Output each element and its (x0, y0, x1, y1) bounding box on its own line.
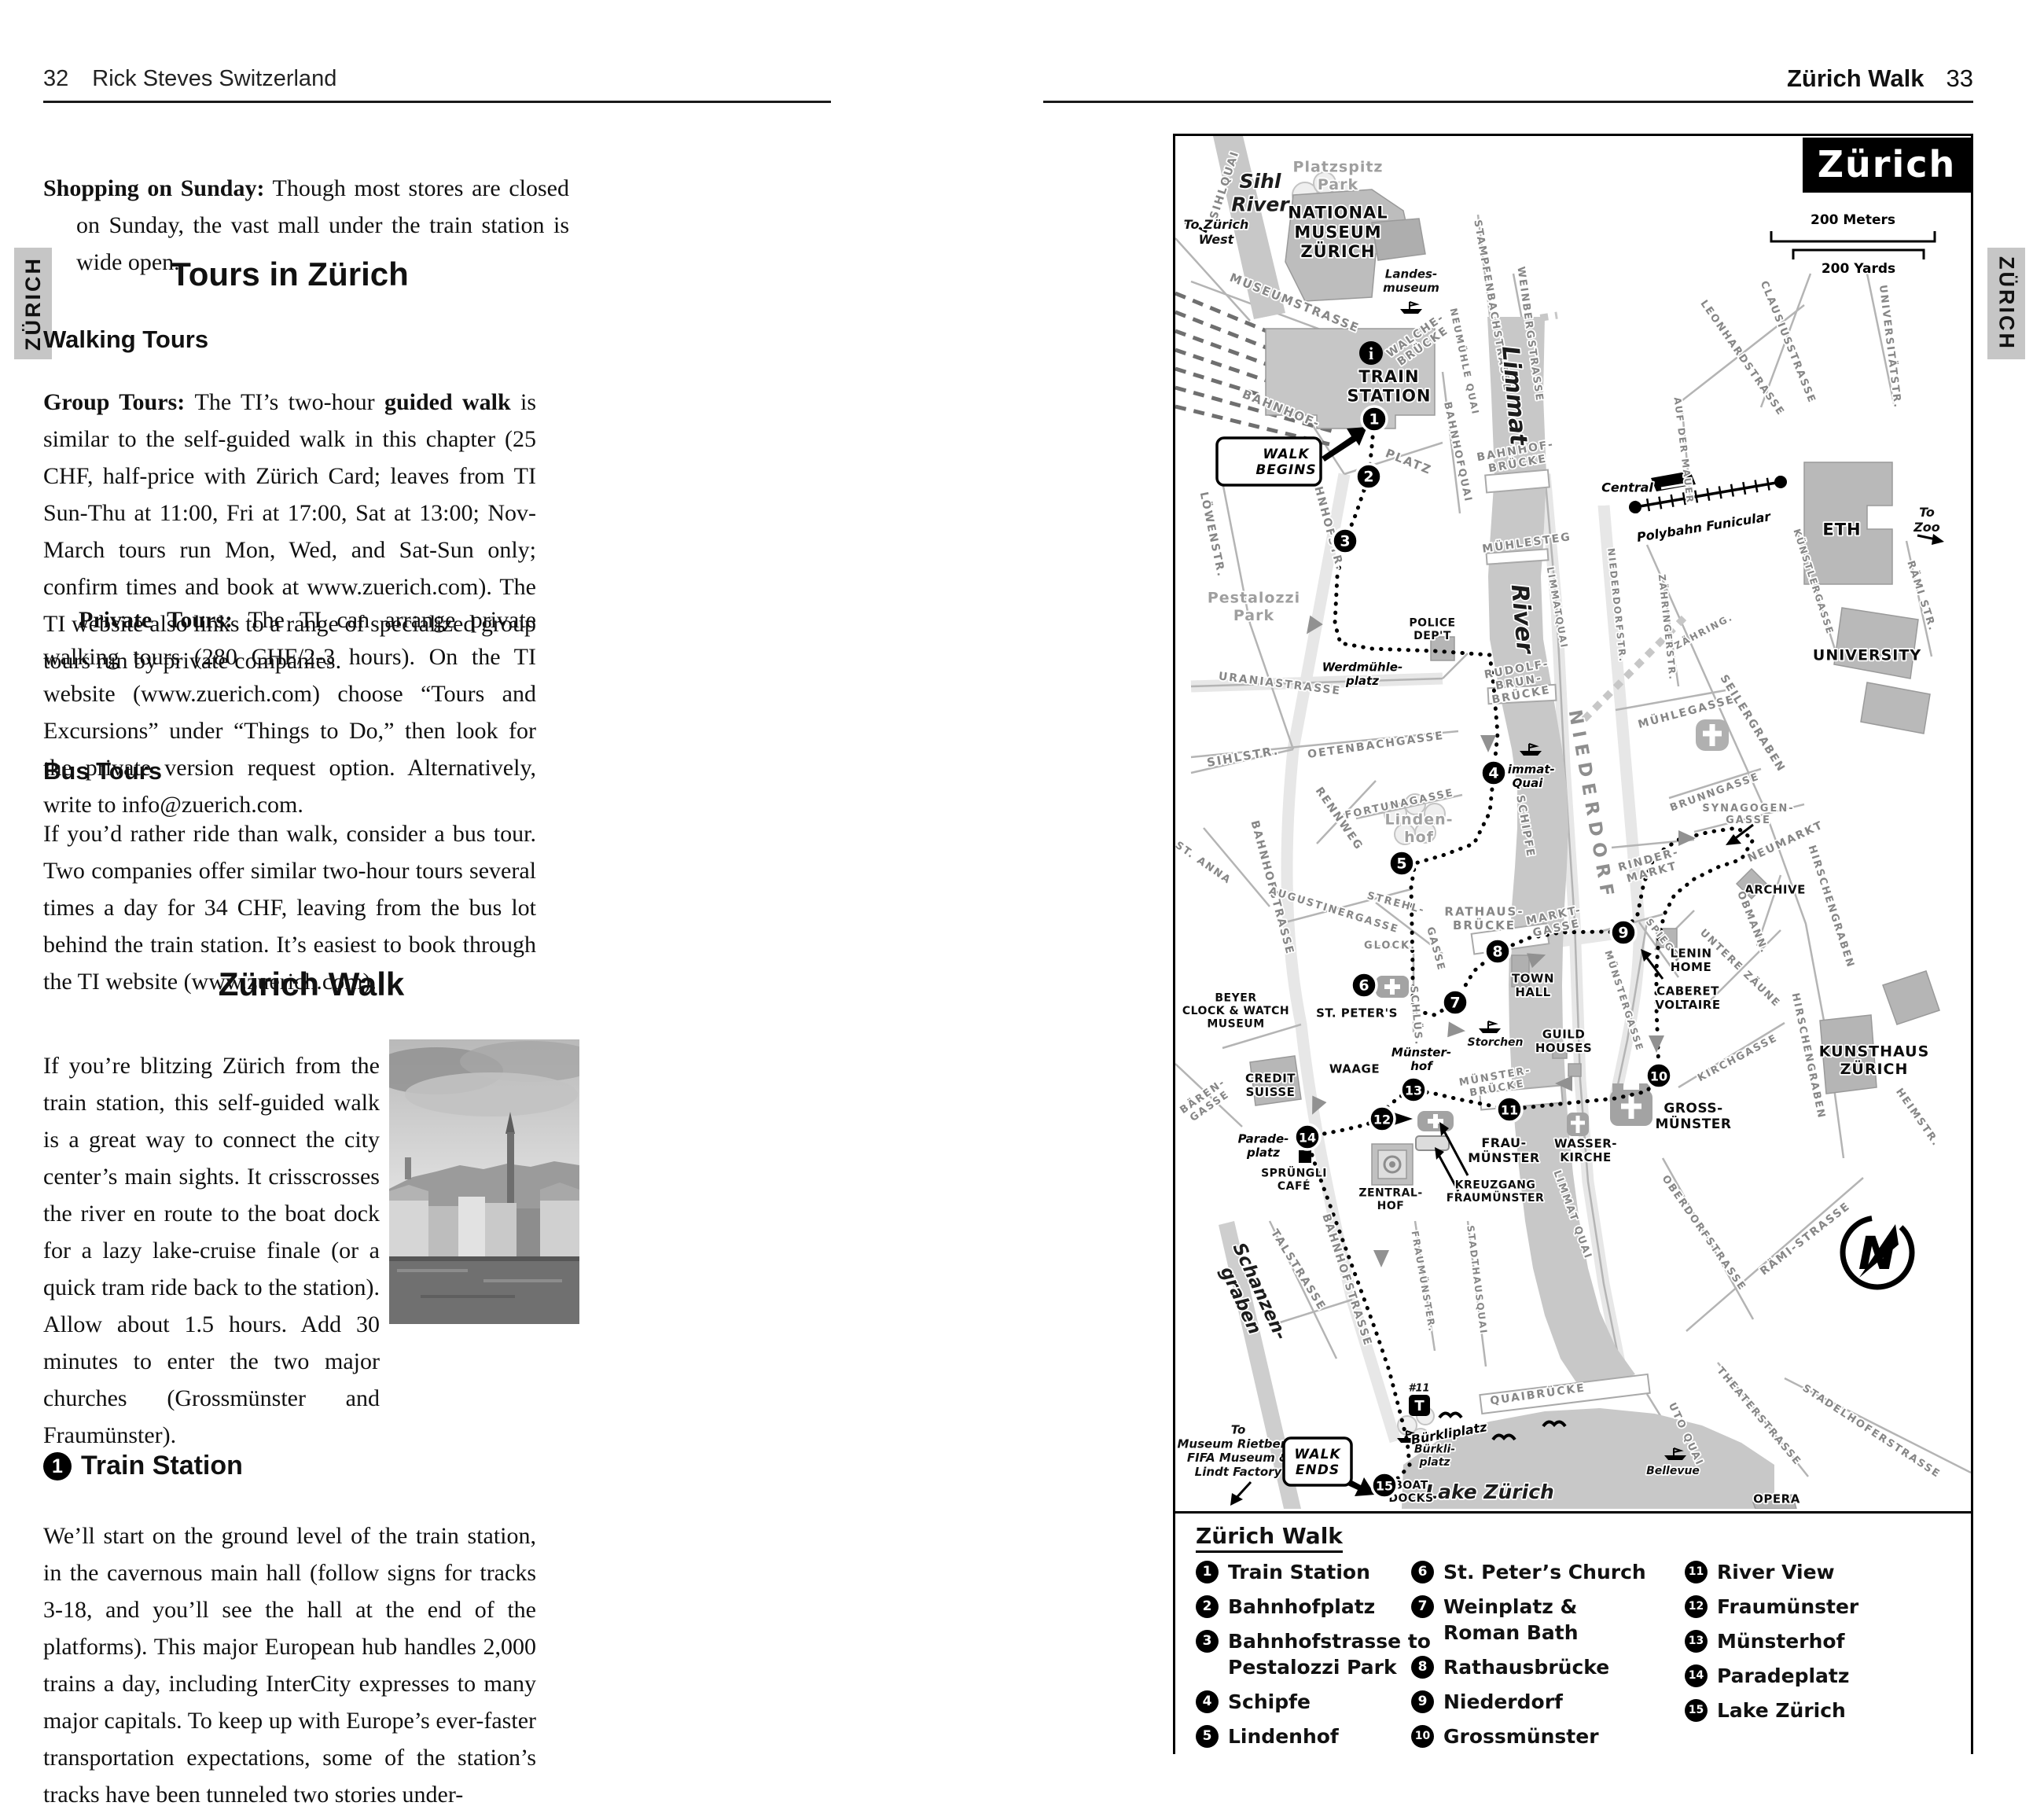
map-label-schanzen-graben: Schanzen-graben (1209, 1240, 1292, 1352)
svg-text:14: 14 (1299, 1131, 1316, 1146)
svg-text:T: T (1414, 1398, 1425, 1414)
map-label-bellevue: Bellevue (1646, 1465, 1700, 1477)
map-label-national-museum-zürich: NATIONALMUSEUMZÜRICH (1288, 204, 1388, 262)
map-label-synagogen-gasse: SYNAGOGEN-GASSE (1702, 803, 1794, 826)
map-marker-7: 7 (1443, 990, 1468, 1015)
right-zurich-tab: ZÜRICH (1987, 248, 2025, 359)
svg-text:UNIVERSITY: UNIVERSITY (1813, 647, 1921, 664)
map-label-zähringerstr: ZÄHRINGERSTR. (1656, 574, 1679, 682)
map-marker-10: 10 (1646, 1063, 1671, 1088)
scale-meters: 200 Meters (1811, 212, 1895, 228)
map-marker-1: 1 (1362, 406, 1387, 432)
map-title: Zürich (1818, 143, 1957, 186)
map-label-bürkli-platz: Bürkli-platz (1414, 1444, 1455, 1469)
zurich-map-panel: i T N 200 Meters 200 Yards Zürich SIHLQU… (1173, 134, 1973, 1754)
svg-text:URANIASTRASSE: URANIASTRASSE (1218, 670, 1342, 697)
svg-text:Bellevue: Bellevue (1646, 1465, 1700, 1477)
legend-label: Lindenhof (1228, 1723, 1339, 1749)
map-label-gasse: GASSE (1424, 925, 1447, 973)
map-marker-3: 3 (1333, 528, 1358, 554)
legend-badge-9: 9 (1411, 1690, 1434, 1713)
svg-text:TRAINSTATION: TRAINSTATION (1347, 367, 1431, 406)
map-label-glock: GLOCK. (1364, 940, 1416, 952)
svg-text:SihlRiver: SihlRiver (1231, 170, 1290, 216)
map-marker-2: 2 (1356, 464, 1381, 489)
svg-text:6: 6 (1358, 977, 1369, 995)
map-marker-5: 5 (1389, 851, 1414, 876)
svg-text:5: 5 (1396, 855, 1406, 873)
legend-badge-11: 11 (1685, 1561, 1708, 1583)
legend-label: Niederdorf (1443, 1689, 1563, 1715)
legend-label: St. Peter’s Church (1443, 1559, 1646, 1585)
legend-label: Lake Zürich (1717, 1697, 1846, 1723)
map-label-lenin-home: LENINHOME (1671, 946, 1712, 974)
map-label-eth: ETH (1822, 520, 1861, 539)
map-label-kreuzgang-fraumünster: KREUZGANGFRAUMÜNSTER (1447, 1179, 1545, 1205)
svg-text:Linden-hof: Linden-hof (1384, 811, 1453, 845)
map-label-st-peter-s: ST. PETER'S (1316, 1006, 1398, 1020)
svg-text:WALKENDS: WALKENDS (1294, 1447, 1341, 1478)
map-label-seilergraben: SEILERGRABEN (1718, 673, 1788, 775)
svg-text:ST. PETER'S: ST. PETER'S (1316, 1006, 1398, 1020)
map-label-fraumünster: FRAUMÜNSTER. (1410, 1230, 1439, 1333)
svg-text:GROSS-MÜNSTER: GROSS-MÜNSTER (1656, 1101, 1732, 1132)
train-station-paragraph: We’ll start on the ground level of the t… (43, 1517, 536, 1813)
svg-text:OBERDORFSTRASSE: OBERDORFSTRASSE (1660, 1173, 1748, 1293)
svg-text:ToZoo: ToZoo (1913, 505, 1940, 535)
svg-text:2: 2 (1363, 469, 1373, 486)
svg-text:i: i (1369, 344, 1373, 363)
st-peters-church-icon (1376, 976, 1409, 998)
svg-text:7: 7 (1450, 995, 1460, 1012)
svg-text:SYNAGOGEN-GASSE: SYNAGOGEN-GASSE (1702, 803, 1794, 826)
map-label-guild-houses: GUILDHOUSES (1535, 1027, 1592, 1055)
svg-text:GUILDHOUSES: GUILDHOUSES (1535, 1027, 1592, 1055)
legend-badge-4: 4 (1196, 1690, 1219, 1713)
svg-text:FRAUMÜNSTER.: FRAUMÜNSTER. (1410, 1230, 1439, 1333)
legend-badge-12: 12 (1685, 1595, 1708, 1618)
svg-text:PLATZ: PLATZ (1384, 446, 1434, 477)
grossmunster-icon (1610, 1083, 1652, 1126)
legend-item-niederdorf: 9Niederdorf (1411, 1689, 1646, 1715)
svg-text:#11: #11 (1408, 1383, 1429, 1395)
map-label-11: #11 (1408, 1383, 1429, 1395)
svg-text:Münster-hof: Münster-hof (1391, 1045, 1451, 1073)
map-label-archive: ARCHIVE (1744, 882, 1806, 896)
map-label-talstrasse: TALSTRASSE (1268, 1227, 1328, 1313)
left-page-header: 32Rick Steves Switzerland (43, 66, 829, 92)
map-label-heimstr: HEIMSTR. (1893, 1087, 1942, 1149)
svg-text:STADELHOFERSTRASSE: STADELHOFERSTRASSE (1800, 1382, 1943, 1480)
map-label-bären-gasse: BÄREN-GASSE (1178, 1076, 1235, 1126)
legend-item-fraumünster: 12Fraumünster (1685, 1594, 1858, 1620)
svg-text:BAHNHOFSTRASSE: BAHNHOFSTRASSE (1319, 1212, 1374, 1348)
svg-text:11: 11 (1501, 1103, 1518, 1118)
legend-badge-1: 1 (1196, 1561, 1219, 1583)
legend-label: Grossmünster (1443, 1723, 1599, 1749)
map-label-uraniastrasse: URANIASTRASSE (1218, 670, 1342, 697)
legend-label: Weinplatz & Roman Bath (1443, 1594, 1579, 1646)
svg-text:TOWNHALL: TOWNHALL (1512, 971, 1554, 999)
legend-badge-7: 7 (1411, 1595, 1434, 1618)
map-label-platz: PLATZ (1384, 446, 1434, 477)
map-label-lake-zürich: Lake Zürich (1425, 1480, 1554, 1503)
map-label-waage: WAAGE (1329, 1061, 1380, 1076)
svg-text:RATHAUS-BRÜCKE: RATHAUS-BRÜCKE (1444, 904, 1524, 932)
legend-item-rathausbrücke: 8Rathausbrücke (1411, 1654, 1646, 1680)
book-title: Rick Steves Switzerland (92, 66, 336, 91)
svg-text:OPERA: OPERA (1753, 1491, 1800, 1506)
right-page-title: Zürich Walk (1787, 64, 1925, 92)
svg-text:LENINHOME: LENINHOME (1671, 946, 1712, 974)
map-label-storchen: Storchen (1467, 1036, 1523, 1049)
legend-label: Münsterhof (1717, 1628, 1844, 1654)
map-label-linden-hof: Linden-hof (1384, 811, 1453, 845)
map-label-oetenbachgasse: OETENBACHGASSE (1307, 730, 1445, 761)
compass-north-icon: N (1843, 1218, 1912, 1287)
map-marker-11: 11 (1497, 1097, 1522, 1122)
shopping-lead: Shopping on Sunday: (43, 175, 264, 201)
map-marker-9: 9 (1611, 920, 1636, 945)
map-label-zentral-hof: ZENTRAL-HOF (1358, 1187, 1422, 1213)
zurich-walk-heading: Zürich Walk (43, 966, 579, 1003)
map-label-train-station: TRAINSTATION (1347, 367, 1431, 406)
fraumunster-icon (1416, 1111, 1454, 1150)
legend-badge-2: 2 (1196, 1595, 1219, 1618)
svg-text:AUF DER MAUER: AUF DER MAUER (1672, 396, 1697, 504)
map-label-limmatquai: LIMMATQUAI (1545, 566, 1570, 650)
map-label-polybahn-funicular: Polybahn Funicular (1636, 509, 1773, 545)
legend-title: Zürich Walk (1196, 1523, 1343, 1553)
map-label-landes-museum: Landes-museum (1383, 267, 1439, 295)
map-label-rathaus-brücke: RATHAUS-BRÜCKE (1444, 904, 1524, 932)
tours-heading: Tours in Zürich (43, 256, 536, 293)
map-label-rinder-markt: RINDER-MARKT (1617, 846, 1684, 887)
svg-text:1: 1 (1369, 411, 1379, 429)
legend-item-st-peter-s-church: 6St. Peter’s Church (1411, 1559, 1646, 1585)
svg-text:Parade-platz: Parade-platz (1238, 1131, 1289, 1160)
svg-text:SIHLSTR.: SIHLSTR. (1206, 743, 1281, 770)
wasserkirche-icon (1567, 1113, 1589, 1136)
svg-text:NEUMÜHLE QUAI: NEUMÜHLE QUAI (1448, 307, 1483, 416)
map-label-parade-platz: Parade-platz (1238, 1131, 1289, 1160)
map-label-gross-münster: GROSS-MÜNSTER (1656, 1101, 1732, 1132)
map-label-sprüngli-caf: SPRÜNGLICAFÉ (1261, 1166, 1327, 1194)
svg-text:STADTHAUSQUAI: STADTHAUSQUAI (1465, 1225, 1489, 1336)
zurich-walk-intro: If you’re blitzing Zürich from the train… (43, 1047, 380, 1454)
svg-text:WAAGE: WAAGE (1329, 1061, 1380, 1076)
legend-item-paradeplatz: 14Paradeplatz (1685, 1663, 1858, 1689)
legend-badge-6: 6 (1411, 1561, 1434, 1583)
legend-item-train-station: 1Train Station (1196, 1559, 1431, 1585)
svg-text:LÖWENSTR.: LÖWENSTR. (1197, 491, 1230, 579)
svg-text:ETH: ETH (1822, 520, 1861, 539)
svg-text:ZENTRAL-HOF: ZENTRAL-HOF (1358, 1187, 1422, 1213)
svg-text:WASSER-KIRCHE: WASSER-KIRCHE (1554, 1136, 1617, 1164)
map-label-beyer-clock-watch-museum: BEYERCLOCK & WATCHMUSEUM (1182, 991, 1289, 1030)
svg-text:Bürkli-platz: Bürkli-platz (1414, 1444, 1455, 1469)
right-page-number: 33 (1947, 64, 1973, 92)
map-label-sihl-river: SihlRiver (1231, 170, 1290, 216)
walk-photo (389, 1039, 579, 1324)
svg-text:13: 13 (1405, 1083, 1422, 1098)
zurich-map: i T N 200 Meters 200 Yards Zürich SIHLQU… (1175, 136, 1971, 1509)
map-label-universitätstr: UNIVERSITÄTSTR. (1877, 284, 1904, 409)
map-label-caberet-voltaire: CABERETVOLTAIRE (1655, 984, 1720, 1012)
scale-yards: 200 Yards (1822, 261, 1895, 277)
svg-text:CABERETVOLTAIRE: CABERETVOLTAIRE (1655, 984, 1720, 1012)
svg-text:KREUZGANGFRAUMÜNSTER: KREUZGANGFRAUMÜNSTER (1447, 1179, 1545, 1205)
svg-text:9: 9 (1618, 925, 1628, 942)
private-tours-paragraph: Private Tours: The TI can arrange privat… (43, 601, 536, 823)
map-label-schlüs: SCHLÜS. (1407, 985, 1425, 1046)
train-station-heading: 1 Train Station (43, 1451, 243, 1481)
map-label-oberdorfstrasse: OBERDORFSTRASSE (1660, 1173, 1748, 1293)
svg-text:SEILERGRABEN: SEILERGRABEN (1718, 673, 1788, 775)
svg-text:10: 10 (1650, 1069, 1667, 1084)
svg-text:RÄMI-STRASSE: RÄMI-STRASSE (1757, 1199, 1853, 1278)
map-label-pestalozzi-park: PestalozziPark (1208, 589, 1300, 623)
map-label-rämi-strasse: RÄMI-STRASSE (1757, 1199, 1853, 1278)
legend-badge-8: 8 (1411, 1656, 1434, 1679)
svg-text:Lake Zürich: Lake Zürich (1425, 1480, 1554, 1503)
right-page-header: Zürich Walk33 (1164, 64, 1973, 93)
right-header-rule (1043, 101, 1973, 103)
map-label-neumühle-quai: NEUMÜHLE QUAI (1448, 307, 1483, 416)
svg-text:Landes-museum: Landes-museum (1383, 267, 1439, 295)
legend-item-bahnhofplatz: 2Bahnhofplatz (1196, 1594, 1431, 1620)
legend-badge-10: 10 (1411, 1725, 1434, 1748)
legend-label: Rathausbrücke (1443, 1654, 1609, 1680)
svg-text:Schanzen-graben: Schanzen-graben (1209, 1240, 1292, 1352)
legend-item-schipfe: 4Schipfe (1196, 1689, 1431, 1715)
legend-badge-14: 14 (1685, 1664, 1708, 1687)
map-marker-4: 4 (1481, 760, 1506, 785)
svg-text:RINDER-MARKT: RINDER-MARKT (1617, 846, 1684, 887)
map-label-town-hall: TOWNHALL (1512, 971, 1554, 999)
left-page-number: 32 (43, 66, 68, 91)
svg-text:OETENBACHGASSE: OETENBACHGASSE (1307, 730, 1445, 761)
legend-label: Paradeplatz (1717, 1663, 1849, 1689)
svg-text:ZÄHRINGERSTR.: ZÄHRINGERSTR. (1656, 574, 1679, 682)
svg-text:GLOCK.: GLOCK. (1364, 940, 1416, 952)
legend-label: Fraumünster (1717, 1594, 1858, 1620)
svg-text:SCHLÜS.: SCHLÜS. (1407, 985, 1425, 1046)
svg-text:3: 3 (1340, 533, 1350, 550)
svg-text:POLICEDEP'T: POLICEDEP'T (1409, 617, 1455, 643)
svg-text:LIMMATQUAI: LIMMATQUAI (1545, 566, 1570, 650)
map-label-st-anna: ST. ANNA (1175, 840, 1233, 887)
svg-text:8: 8 (1492, 943, 1502, 961)
bus-tours-subheading: Bus Tours (43, 757, 162, 785)
walking-tours-subheading: Walking Tours (43, 326, 208, 354)
map-label-credit-suisse: CREDITSUISSE (1245, 1071, 1296, 1099)
map-label-löwenstr: LÖWENSTR. (1197, 491, 1230, 579)
svg-text:Storchen: Storchen (1467, 1036, 1523, 1049)
map-marker-13: 13 (1401, 1077, 1426, 1102)
map-label-auf-der-mauer: AUF DER MAUER (1672, 396, 1697, 504)
svg-text:PestalozziPark: PestalozziPark (1208, 589, 1300, 623)
svg-text:NATIONALMUSEUMZÜRICH: NATIONALMUSEUMZÜRICH (1288, 204, 1388, 262)
legend-badge-5: 5 (1196, 1725, 1219, 1748)
station-number-badge: 1 (43, 1452, 72, 1480)
svg-text:Polybahn Funicular: Polybahn Funicular (1636, 509, 1773, 545)
svg-text:ST. ANNA: ST. ANNA (1175, 840, 1233, 887)
svg-text:BÄREN-GASSE: BÄREN-GASSE (1178, 1076, 1235, 1126)
map-label-bahnhofstrasse: BAHNHOFSTRASSE (1319, 1212, 1374, 1348)
map-label-opera: OPERA (1753, 1491, 1800, 1506)
legend-item-weinplatz-roman-bath: 7Weinplatz & Roman Bath (1411, 1594, 1646, 1646)
legend-item-bahnhofstrasse-to-pestalozzi-park: 3Bahnhofstrasse to Pestalozzi Park (1196, 1628, 1431, 1680)
legend-item-münsterhof: 13Münsterhof (1685, 1628, 1858, 1654)
map-label-central: Central (1601, 480, 1653, 495)
legend-item-river-view: 11River View (1685, 1559, 1858, 1585)
svg-text:GASSE: GASSE (1424, 925, 1447, 973)
map-label-wasser-kirche: WASSER-KIRCHE (1554, 1136, 1617, 1164)
info-icon: i (1359, 341, 1383, 365)
map-label-university: UNIVERSITY (1813, 647, 1921, 664)
legend-item-lindenhof: 5Lindenhof (1196, 1723, 1431, 1749)
map-label-münster-hof: Münster-hof (1391, 1045, 1451, 1073)
map-marker-12: 12 (1369, 1106, 1395, 1131)
map-label-walk-ends: WALKENDS (1284, 1438, 1351, 1485)
svg-text:CREDITSUISSE: CREDITSUISSE (1245, 1071, 1296, 1099)
map-label-stadelhoferstrasse: STADELHOFERSTRASSE (1800, 1382, 1943, 1480)
map-marker-8: 8 (1485, 939, 1510, 964)
svg-text:HEIMSTR.: HEIMSTR. (1893, 1087, 1942, 1149)
legend-badge-13: 13 (1685, 1630, 1708, 1653)
svg-text:TALSTRASSE: TALSTRASSE (1268, 1227, 1328, 1313)
map-label-sihlstr: SIHLSTR. (1206, 743, 1281, 770)
legend-label: River View (1717, 1559, 1835, 1585)
svg-text:BEYERCLOCK & WATCHMUSEUM: BEYERCLOCK & WATCHMUSEUM (1182, 991, 1289, 1030)
legend-label: Bahnhofstrasse to Pestalozzi Park (1228, 1628, 1431, 1680)
svg-text:WALKBEGINS: WALKBEGINS (1255, 447, 1316, 478)
map-label-to-zoo: ToZoo (1913, 505, 1940, 535)
svg-text:Central: Central (1601, 480, 1653, 495)
tram-stop-icon: T (1409, 1395, 1430, 1416)
svg-text:4: 4 (1488, 765, 1498, 782)
svg-text:KIRCHGASSE: KIRCHGASSE (1696, 1032, 1780, 1084)
svg-text:ARCHIVE: ARCHIVE (1744, 882, 1806, 896)
map-marker-14: 14 (1295, 1124, 1320, 1149)
map-label-walk-begins: WALKBEGINS (1217, 438, 1321, 485)
map-marker-6: 6 (1351, 973, 1377, 998)
svg-text:15: 15 (1376, 1479, 1393, 1494)
svg-text:UNIVERSITÄTSTR.: UNIVERSITÄTSTR. (1877, 284, 1904, 409)
scale-bars (1771, 231, 1935, 259)
legend-label: Train Station (1228, 1559, 1370, 1585)
legend-badge-3: 3 (1196, 1630, 1219, 1653)
legend-label: Bahnhofplatz (1228, 1594, 1375, 1620)
legend-item-grossmünster: 10Grossmünster (1411, 1723, 1646, 1749)
legend-label: Schipfe (1228, 1689, 1311, 1715)
legend-badge-15: 15 (1685, 1699, 1708, 1722)
map-marker-15: 15 (1372, 1473, 1397, 1498)
map-label-kirchgasse: KIRCHGASSE (1696, 1032, 1780, 1084)
svg-text:12: 12 (1373, 1113, 1391, 1127)
svg-text:SPRÜNGLICAFÉ: SPRÜNGLICAFÉ (1261, 1166, 1327, 1194)
map-label-stadthausquai: STADTHAUSQUAI (1465, 1225, 1489, 1336)
map-label-police-dep-t: POLICEDEP'T (1409, 617, 1455, 643)
legend-item-lake-zürich: 15Lake Zürich (1685, 1697, 1858, 1723)
svg-text:HIRSCHENGRABEN: HIRSCHENGRABEN (1806, 844, 1857, 969)
map-label-hirschengraben: HIRSCHENGRABEN (1806, 844, 1857, 969)
left-header-rule (43, 101, 831, 103)
predigerkirche-icon (1696, 719, 1729, 751)
fraumunster-arrow (1394, 1113, 1413, 1125)
map-legend: Zürich Walk 1Train Station2Bahnhofplatz3… (1175, 1511, 1971, 1754)
